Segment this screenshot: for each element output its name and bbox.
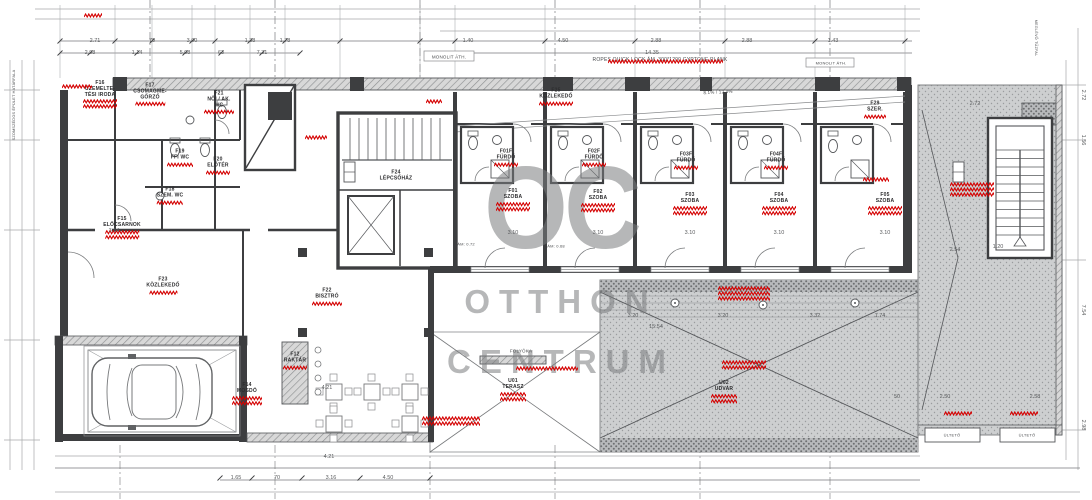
floorplan-page: OC OTTHON CENTRUM F16ÜZEMELTE-TÉSI IRODA… xyxy=(0,0,1092,500)
floorplan-linework xyxy=(0,0,1092,500)
